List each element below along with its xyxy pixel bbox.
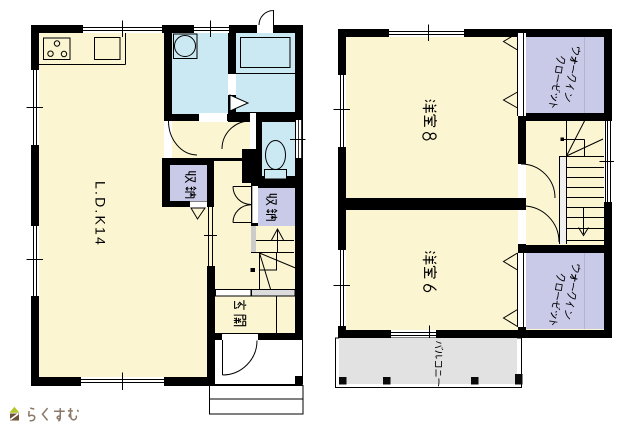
svg-text:L.D.K14: L.D.K14 [93,181,109,247]
